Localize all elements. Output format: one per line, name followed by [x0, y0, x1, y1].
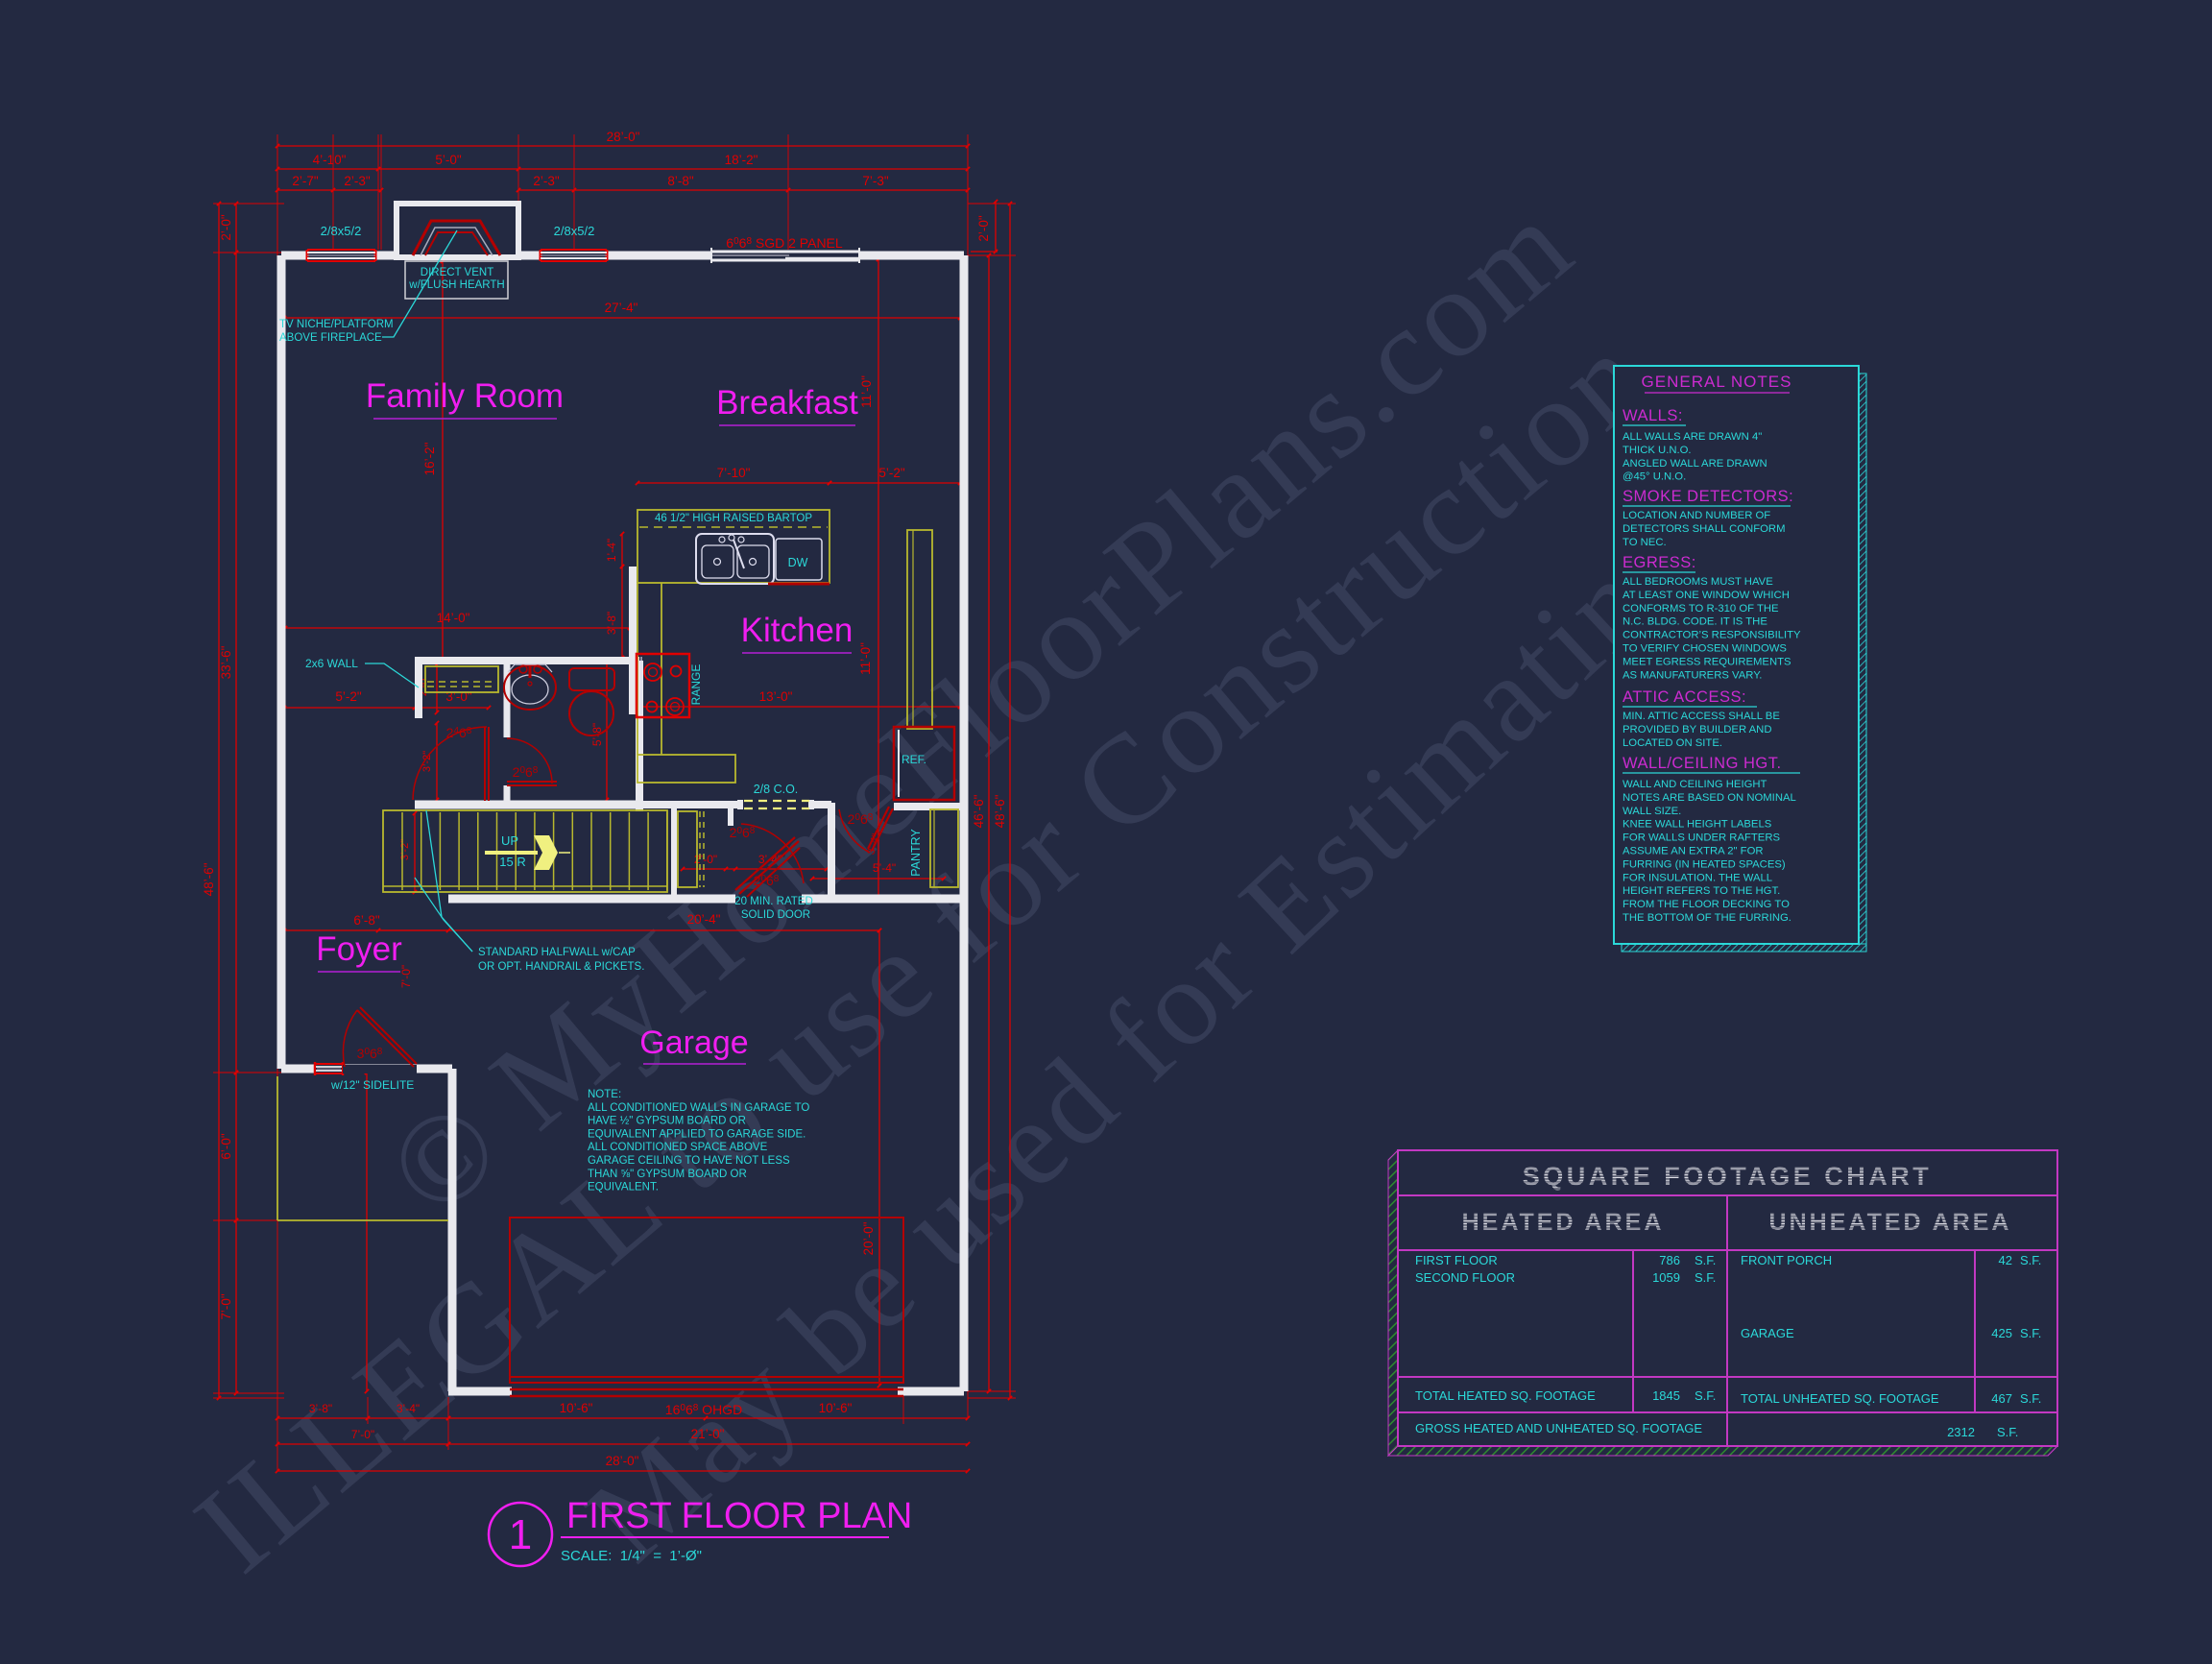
- svg-text:S.F.: S.F.: [2020, 1253, 2041, 1267]
- svg-text:w/12" SIDELITE: w/12" SIDELITE: [330, 1078, 414, 1092]
- svg-text:2’-3": 2’-3": [344, 174, 371, 188]
- svg-text:ATTIC ACCESS:: ATTIC ACCESS:: [1623, 688, 1746, 706]
- svg-text:UP: UP: [501, 833, 518, 848]
- svg-text:11’-0": 11’-0": [859, 375, 874, 408]
- svg-text:6’-0": 6’-0": [219, 1133, 233, 1160]
- svg-text:S.F.: S.F.: [2020, 1326, 2041, 1340]
- svg-text:PANTRY: PANTRY: [909, 829, 923, 877]
- svg-text:ABOVE FIREPLACE: ABOVE FIREPLACE: [279, 332, 382, 344]
- svg-text:425: 425: [1991, 1326, 2012, 1340]
- svg-text:3’-8": 3’-8": [309, 1402, 332, 1415]
- svg-text:7’-3": 7’-3": [862, 174, 889, 188]
- svg-text:ALL CONDITIONED WALLS IN GARAG: ALL CONDITIONED WALLS IN GARAGE TO: [588, 1102, 809, 1114]
- svg-text:AS MANUFATURERS VARY.: AS MANUFATURERS VARY.: [1623, 669, 1762, 681]
- svg-text:20’-0": 20’-0": [861, 1221, 876, 1255]
- svg-text:2’-7": 2’-7": [292, 174, 319, 188]
- svg-text:REF.: REF.: [902, 753, 926, 766]
- svg-text:RANGE: RANGE: [689, 664, 703, 706]
- svg-text:N.C. BLDG. CODE. IT IS THE: N.C. BLDG. CODE. IT IS THE: [1623, 616, 1767, 628]
- svg-text:10’-6": 10’-6": [560, 1401, 593, 1415]
- svg-text:LOCATION AND NUMBER OF: LOCATION AND NUMBER OF: [1623, 510, 1770, 521]
- svg-text:7’-0": 7’-0": [219, 1293, 233, 1320]
- svg-text:SOLID DOOR: SOLID DOOR: [741, 909, 810, 921]
- svg-text:S.F.: S.F.: [1695, 1388, 1716, 1403]
- svg-text:2’-0": 2’-0": [976, 215, 991, 242]
- svg-text:1: 1: [509, 1511, 532, 1558]
- svg-text:FOR WALLS UNDER RAFTERS: FOR WALLS UNDER RAFTERS: [1623, 832, 1780, 844]
- svg-text:HAVE ½" GYPSUM BOARD OR: HAVE ½" GYPSUM BOARD OR: [588, 1116, 746, 1127]
- svg-text:6’-8": 6’-8": [353, 913, 380, 928]
- svg-text:THE BOTTOM OF THE FURRING.: THE BOTTOM OF THE FURRING.: [1623, 912, 1791, 924]
- svg-text:20’-4": 20’-4": [687, 912, 721, 927]
- svg-text:15 R: 15 R: [499, 855, 525, 869]
- svg-text:LOCATED ON SITE.: LOCATED ON SITE.: [1623, 737, 1722, 749]
- svg-text:THICK U.N.O.: THICK U.N.O.: [1623, 445, 1692, 456]
- svg-text:UNHEATED AREA: UNHEATED AREA: [1769, 1209, 2012, 1236]
- svg-text:786: 786: [1659, 1253, 1680, 1267]
- svg-text:3’-4": 3’-4": [397, 1402, 420, 1415]
- svg-text:S.F.: S.F.: [1997, 1425, 2018, 1439]
- svg-text:10’-6": 10’-6": [819, 1401, 853, 1415]
- svg-text:EQUIVALENT.: EQUIVALENT.: [588, 1182, 659, 1194]
- svg-text:ALL CONDITIONED SPACE ABOVE: ALL CONDITIONED SPACE ABOVE: [588, 1142, 768, 1153]
- svg-text:1’-4": 1’-4": [605, 539, 618, 562]
- svg-text:3’-8": 3’-8": [605, 612, 618, 635]
- svg-text:FROM THE FLOOR DECKING TO: FROM THE FLOOR DECKING TO: [1623, 899, 1790, 910]
- svg-text:6068 SGD 2 PANEL: 6068 SGD 2 PANEL: [726, 235, 843, 251]
- svg-text:18’-2": 18’-2": [725, 153, 758, 167]
- svg-text:HEATED AREA: HEATED AREA: [1462, 1209, 1665, 1236]
- svg-text:28’-0": 28’-0": [606, 1454, 639, 1468]
- svg-text:TO NEC.: TO NEC.: [1623, 537, 1667, 548]
- svg-text:NOTE:: NOTE:: [588, 1089, 621, 1100]
- svg-text:MIN. ATTIC ACCESS SHALL BE: MIN. ATTIC ACCESS SHALL BE: [1623, 711, 1780, 722]
- svg-text:16068 OHGD: 16068 OHGD: [665, 1402, 742, 1417]
- svg-text:FIRST FLOOR PLAN: FIRST FLOOR PLAN: [566, 1496, 912, 1536]
- svg-text:SQUARE FOOTAGE CHART: SQUARE FOOTAGE CHART: [1523, 1162, 1933, 1191]
- svg-text:FOR INSULATION. THE WALL: FOR INSULATION. THE WALL: [1623, 872, 1772, 883]
- svg-text:KNEE WALL HEIGHT LABELS: KNEE WALL HEIGHT LABELS: [1623, 819, 1772, 831]
- svg-text:8’-8": 8’-8": [667, 174, 694, 188]
- svg-text:GROSS HEATED AND UNHEATED SQ.: GROSS HEATED AND UNHEATED SQ. FOOTAGE: [1415, 1421, 1702, 1435]
- svg-text:FURRING (IN HEATED SPACES): FURRING (IN HEATED SPACES): [1623, 858, 1786, 870]
- svg-text:16’-2": 16’-2": [422, 442, 437, 475]
- svg-text:1059: 1059: [1652, 1270, 1680, 1285]
- svg-text:ANGLED WALL ARE DRAWN: ANGLED WALL ARE DRAWN: [1623, 458, 1767, 470]
- svg-text:2’-3": 2’-3": [533, 174, 560, 188]
- svg-text:5’-2": 5’-2": [335, 689, 362, 704]
- svg-text:46 1/2" HIGH RAISED BARTOP: 46 1/2" HIGH RAISED BARTOP: [655, 513, 812, 524]
- svg-text:MEET EGRESS REQUIREMENTS: MEET EGRESS REQUIREMENTS: [1623, 656, 1791, 667]
- svg-text:TOTAL HEATED SQ. FOOTAGE: TOTAL HEATED SQ. FOOTAGE: [1415, 1388, 1596, 1403]
- svg-text:WALL AND CEILING HEIGHT: WALL AND CEILING HEIGHT: [1623, 779, 1767, 790]
- svg-text:2/8 C.O.: 2/8 C.O.: [754, 783, 799, 796]
- svg-text:1845: 1845: [1652, 1388, 1680, 1403]
- svg-text:GARAGE CEILING TO HAVE NOT LES: GARAGE CEILING TO HAVE NOT LESS: [588, 1155, 790, 1167]
- svg-text:4’-10": 4’-10": [313, 153, 347, 167]
- svg-text:467: 467: [1991, 1391, 2012, 1406]
- svg-text:@45° U.N.O.: @45° U.N.O.: [1623, 471, 1686, 483]
- svg-text:Garage: Garage: [639, 1025, 748, 1061]
- svg-text:Breakfast: Breakfast: [716, 384, 858, 422]
- svg-text:ALL BEDROOMS MUST HAVE: ALL BEDROOMS MUST HAVE: [1623, 576, 1773, 588]
- svg-text:AT LEAST ONE WINDOW WHICH: AT LEAST ONE WINDOW WHICH: [1623, 590, 1790, 601]
- svg-text:14’-0": 14’-0": [437, 611, 470, 625]
- svg-text:Foyer: Foyer: [316, 930, 402, 968]
- svg-text:Family Room: Family Room: [366, 377, 564, 415]
- svg-text:SECOND FLOOR: SECOND FLOOR: [1415, 1270, 1515, 1285]
- svg-text:DW: DW: [788, 556, 808, 569]
- svg-text:27’-4": 27’-4": [605, 301, 638, 315]
- svg-text:42: 42: [1999, 1253, 2012, 1267]
- svg-text:PROVIDED BY BUILDER AND: PROVIDED BY BUILDER AND: [1623, 724, 1771, 736]
- svg-text:GENERAL NOTES: GENERAL NOTES: [1642, 373, 1792, 391]
- svg-text:CONFORMS TO R-310 OF THE: CONFORMS TO R-310 OF THE: [1623, 603, 1779, 615]
- svg-text:DETECTORS SHALL CONFORM: DETECTORS SHALL CONFORM: [1623, 523, 1785, 535]
- svg-text:28’-0": 28’-0": [607, 130, 640, 144]
- svg-text:5’-4": 5’-4": [873, 861, 896, 875]
- svg-text:CONTRACTOR’S RESPONSIBILITY: CONTRACTOR’S RESPONSIBILITY: [1623, 630, 1801, 641]
- svg-text:20 MIN. RATED: 20 MIN. RATED: [734, 896, 813, 907]
- svg-text:33’-6": 33’-6": [219, 645, 233, 679]
- svg-text:Kitchen: Kitchen: [741, 612, 854, 649]
- svg-text:2’-0": 2’-0": [219, 214, 233, 241]
- svg-text:21’-0": 21’-0": [691, 1427, 725, 1441]
- svg-text:NOTES ARE BASED ON NOMINAL: NOTES ARE BASED ON NOMINAL: [1623, 792, 1796, 804]
- svg-text:3’-2": 3’-2": [399, 839, 411, 860]
- svg-text:SCALE: 1/4" = 1’-Ø": SCALE: 1/4" = 1’-Ø": [561, 1548, 702, 1564]
- svg-text:2/8x5/2: 2/8x5/2: [554, 224, 595, 238]
- svg-text:FIRST FLOOR: FIRST FLOOR: [1415, 1253, 1498, 1267]
- svg-text:FRONT PORCH: FRONT PORCH: [1741, 1253, 1832, 1267]
- svg-text:SMOKE DETECTORS:: SMOKE DETECTORS:: [1623, 488, 1793, 505]
- svg-text:ASSUME AN EXTRA 2" FOR: ASSUME AN EXTRA 2" FOR: [1623, 846, 1764, 857]
- svg-text:13’-0": 13’-0": [759, 689, 793, 704]
- svg-text:7’-0": 7’-0": [399, 965, 413, 988]
- svg-text:STANDARD HALFWALL w/CAP: STANDARD HALFWALL w/CAP: [478, 947, 636, 958]
- svg-text:WALL/CEILING HGT.: WALL/CEILING HGT.: [1623, 755, 1782, 772]
- svg-text:S.F.: S.F.: [1695, 1270, 1716, 1285]
- svg-text:WALL SIZE.: WALL SIZE.: [1623, 806, 1681, 817]
- svg-text:TOTAL UNHEATED SQ. FOOTAGE: TOTAL UNHEATED SQ. FOOTAGE: [1741, 1391, 1939, 1406]
- svg-text:7’-10": 7’-10": [717, 466, 751, 480]
- svg-text:ALL WALLS ARE DRAWN 4": ALL WALLS ARE DRAWN 4": [1623, 431, 1762, 443]
- svg-text:TO VERIFY CHOSEN WINDOWS: TO VERIFY CHOSEN WINDOWS: [1623, 643, 1787, 655]
- svg-text:11’-0": 11’-0": [858, 642, 873, 675]
- svg-text:5’-0": 5’-0": [435, 153, 462, 167]
- svg-text:GARAGE: GARAGE: [1741, 1326, 1794, 1340]
- svg-text:48’-6": 48’-6": [202, 862, 216, 896]
- svg-text:EQUIVALENT APPLIED TO GARAGE S: EQUIVALENT APPLIED TO GARAGE SIDE.: [588, 1128, 805, 1140]
- svg-text:HEIGHT REFERS TO THE HGT.: HEIGHT REFERS TO THE HGT.: [1623, 885, 1780, 897]
- svg-text:S.F.: S.F.: [1695, 1253, 1716, 1267]
- svg-text:2312: 2312: [1947, 1425, 1975, 1439]
- svg-text:OR OPT. HANDRAIL & PICKETS.: OR OPT. HANDRAIL & PICKETS.: [478, 961, 644, 973]
- svg-text:S.F.: S.F.: [2020, 1391, 2041, 1406]
- svg-text:2x6 WALL: 2x6 WALL: [305, 657, 358, 670]
- svg-text:46’-6": 46’-6": [972, 794, 986, 828]
- svg-text:2/8x5/2: 2/8x5/2: [321, 224, 362, 238]
- svg-text:TV NICHE/PLATFORM: TV NICHE/PLATFORM: [279, 319, 394, 330]
- svg-text:7’-0": 7’-0": [351, 1428, 374, 1441]
- svg-text:48’-6": 48’-6": [993, 794, 1007, 828]
- svg-text:5’-2": 5’-2": [878, 466, 905, 480]
- svg-text:WALLS:: WALLS:: [1623, 407, 1683, 424]
- svg-text:EGRESS:: EGRESS:: [1623, 554, 1696, 571]
- svg-text:THAN ⅝" GYPSUM BOARD OR: THAN ⅝" GYPSUM BOARD OR: [588, 1169, 747, 1180]
